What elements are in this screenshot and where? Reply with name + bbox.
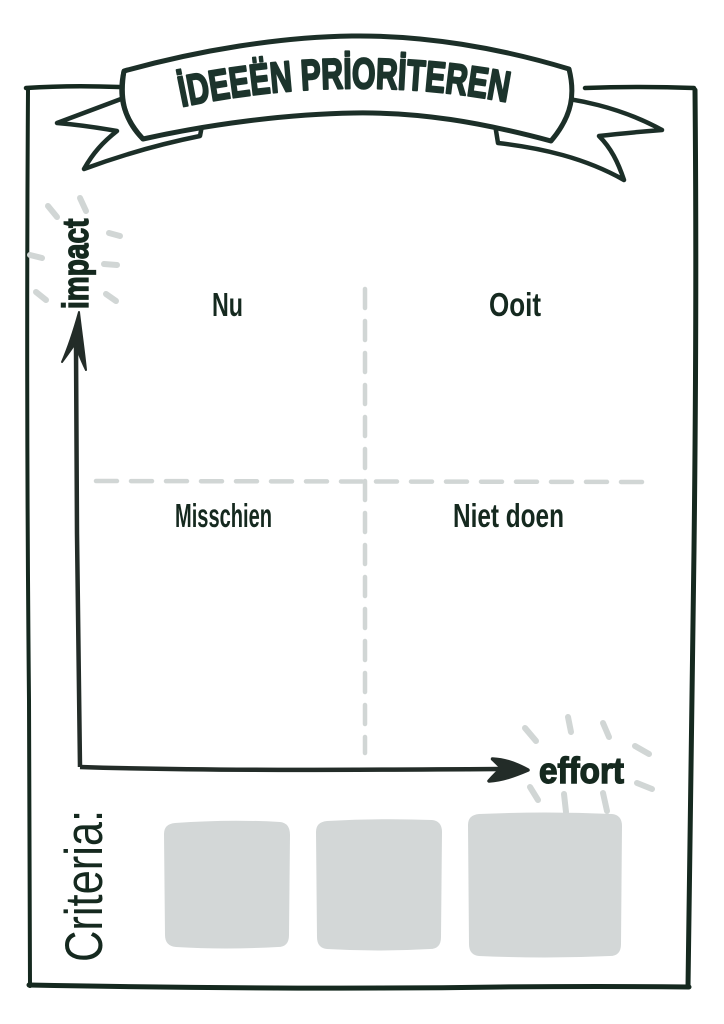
svg-text:effort: effort: [539, 750, 624, 791]
svg-text:Criteria:: Criteria:: [55, 810, 114, 962]
svg-text:Nu: Nu: [212, 286, 243, 323]
svg-text:Ooit: Ooit: [489, 286, 541, 323]
svg-text:Niet doen: Niet doen: [453, 497, 564, 534]
svg-text:Misschien: Misschien: [175, 497, 272, 534]
svg-text:impact: impact: [56, 218, 96, 309]
